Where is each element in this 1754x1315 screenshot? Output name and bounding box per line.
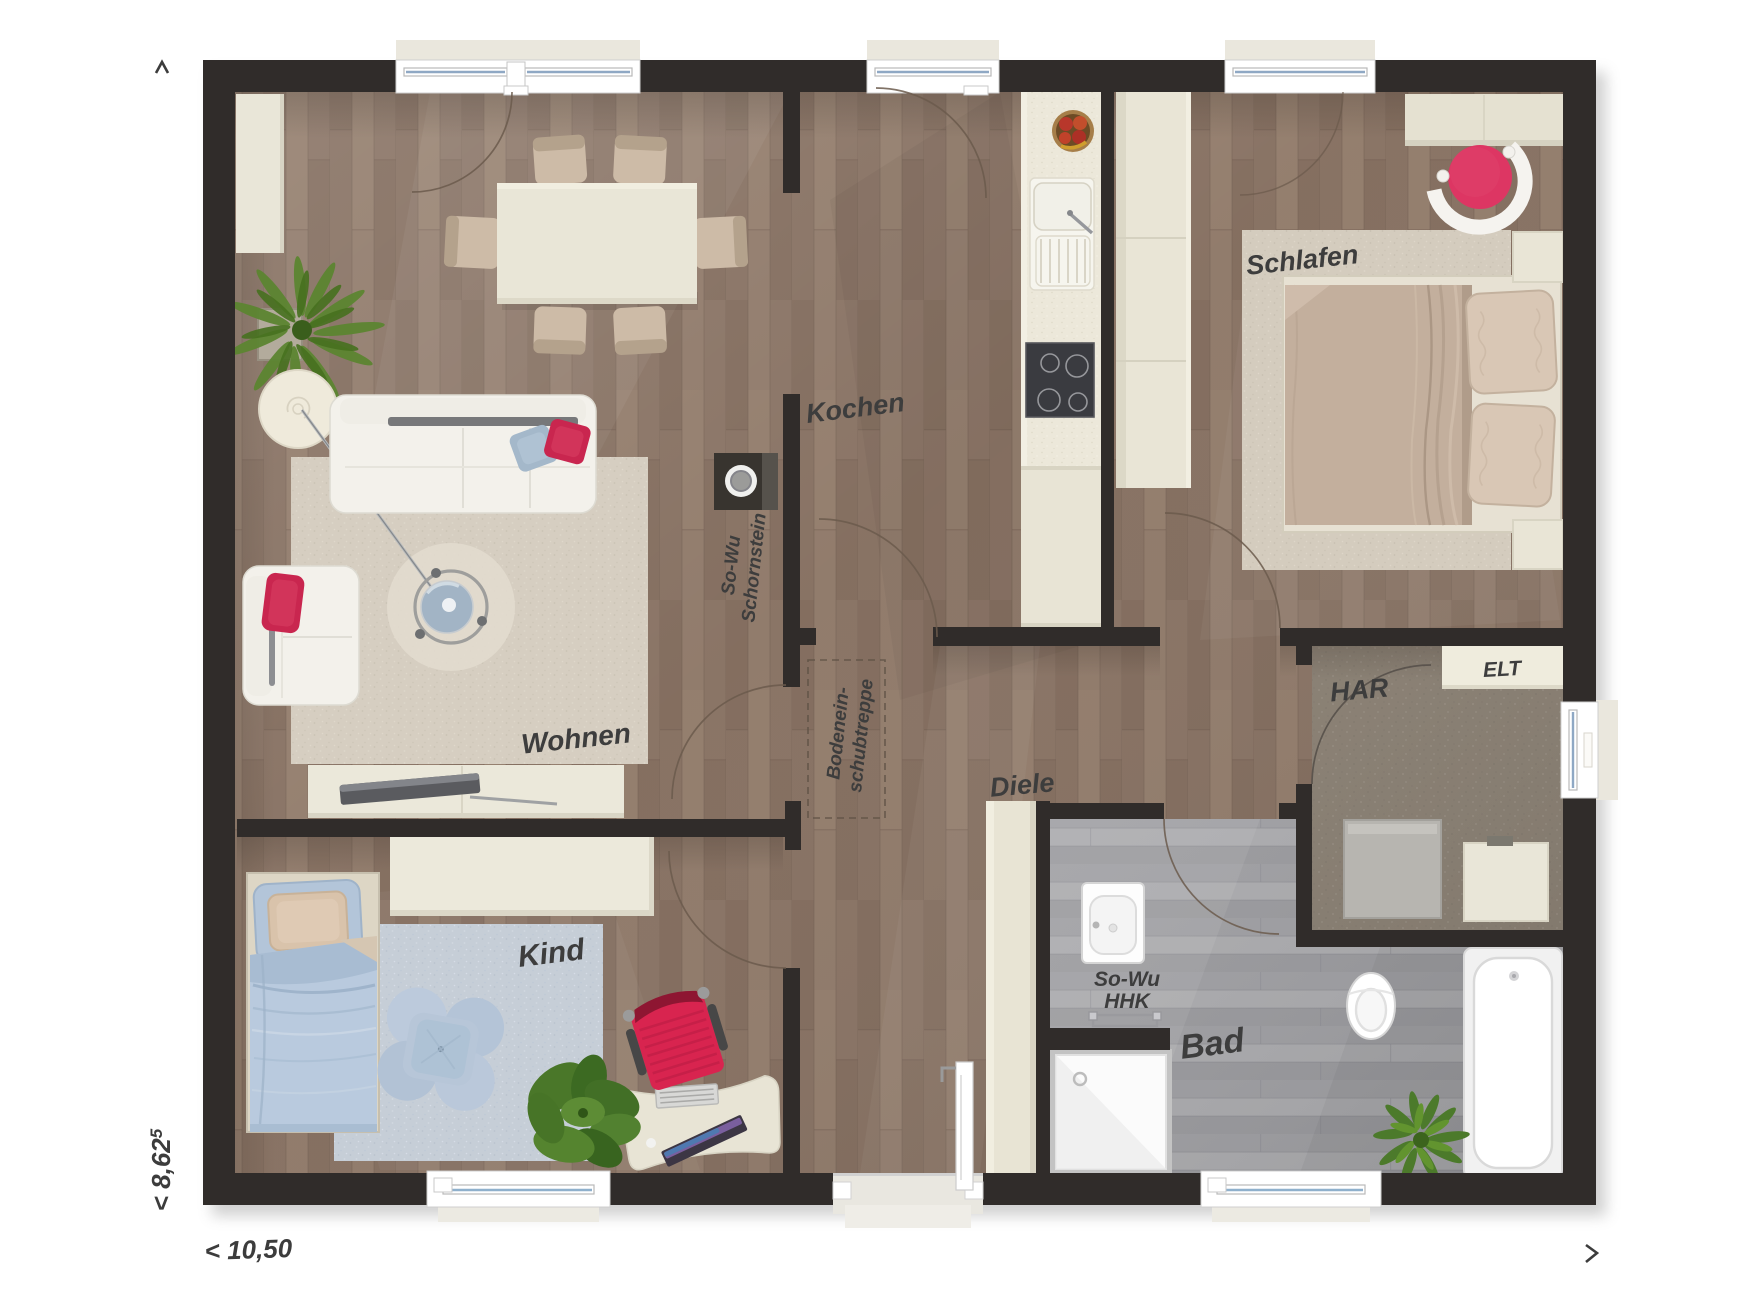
svg-text:< 10,50: < 10,50 [204, 1233, 293, 1266]
svg-text:Bad: Bad [1178, 1021, 1248, 1067]
svg-text:< 8,625: < 8,625 [146, 1128, 176, 1211]
svg-text:ELT: ELT [1482, 657, 1523, 682]
svg-text:HAR: HAR [1329, 672, 1390, 707]
svg-text:Diele: Diele [989, 767, 1056, 803]
